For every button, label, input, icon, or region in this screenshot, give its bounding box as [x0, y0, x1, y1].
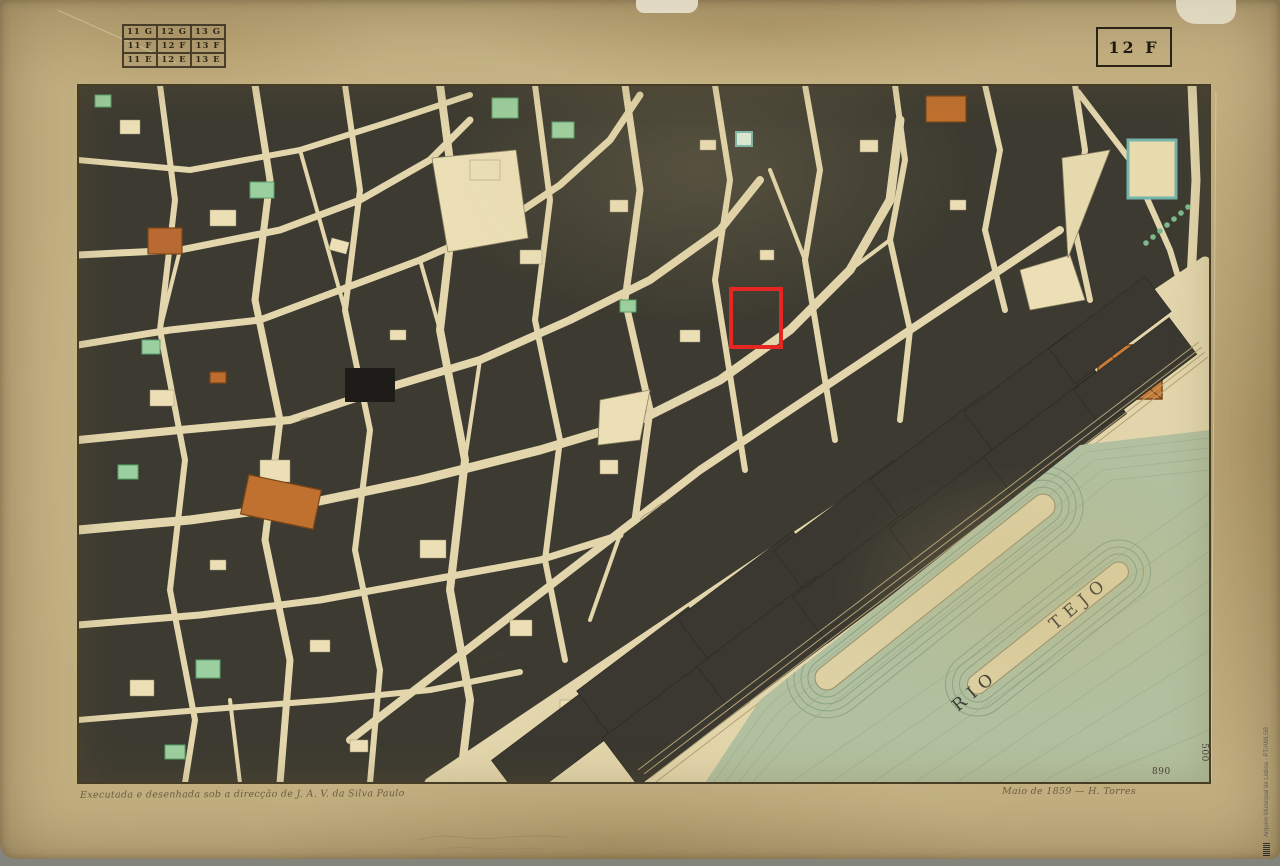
frame-coordinate: 500: [79, 743, 88, 762]
sheet-index-grid: 11 G 12 G 13 G 11 F 12 F 13 F 11 E 12 E …: [122, 24, 226, 68]
barcode-icon: [1263, 842, 1270, 856]
frame-coordinate: 890: [1137, 86, 1156, 95]
credit-inscription-left: Executada e desenhada sob a direcção de …: [80, 788, 405, 801]
frame-coordinate: 0: [79, 99, 88, 105]
frame-coordinate: 0: [1197, 99, 1206, 105]
index-cell: 13 F: [191, 39, 225, 53]
credit-inscription-right: Maio de 1859 — H. Torres: [1002, 786, 1136, 797]
index-cell-current: 12 F: [157, 39, 191, 53]
index-cell: 11 F: [123, 39, 157, 53]
frame-coordinate: 0: [93, 768, 99, 777]
map-neatline-frame: [77, 84, 1211, 784]
archive-watermark: Arquivo Municipal de Lisboa · PT/AMLSB: [1263, 727, 1270, 856]
paper-tear: [636, 0, 698, 13]
pencil-scribble: [408, 828, 588, 858]
scanner-background: [0, 858, 1280, 866]
index-cell: 13 G: [191, 25, 225, 39]
frame-coordinate: 890: [1152, 768, 1171, 777]
index-cell: 11 G: [123, 25, 157, 39]
archive-watermark-text: Arquivo Municipal de Lisboa · PT/AMLSB: [1264, 727, 1270, 837]
scanned-map-sheet: RIO TEJO 11 G 12 G 13 G 11 F 12 F 13 F 1…: [0, 0, 1280, 866]
index-cell: 13 E: [191, 53, 225, 67]
highlight-rectangle: [729, 287, 783, 349]
sheet-number-label: 12 F: [1096, 27, 1172, 67]
index-cell: 12 G: [157, 25, 191, 39]
frame-coordinate: 0: [92, 86, 98, 95]
index-cell: 12 E: [157, 53, 191, 67]
index-cell: 11 E: [123, 53, 157, 67]
paper-tear: [1176, 0, 1236, 24]
frame-coordinate: 500: [1199, 743, 1208, 762]
